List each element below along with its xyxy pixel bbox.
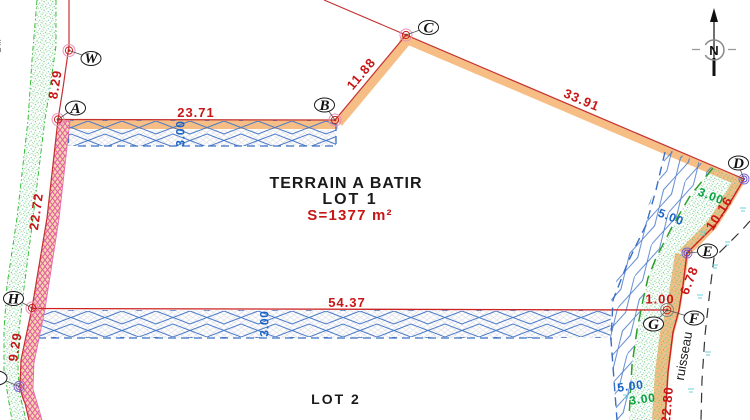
svg-text:3.00: 3.00: [258, 310, 272, 337]
svg-text:S=1377 m²: S=1377 m²: [307, 207, 392, 224]
svg-text:W: W: [84, 51, 99, 67]
svg-text:ruisseau: ruisseau: [672, 330, 695, 381]
svg-text:3.00: 3.00: [174, 120, 188, 147]
svg-text:D: D: [732, 156, 744, 172]
svg-text:C: C: [423, 21, 434, 37]
svg-text:TERRAIN A BATIR: TERRAIN A BATIR: [269, 175, 422, 192]
svg-text:22.80: 22.80: [658, 386, 676, 420]
svg-text:B: B: [318, 98, 329, 114]
svg-text:N: N: [709, 43, 718, 58]
svg-text:E M: E M: [0, 39, 3, 52]
svg-text:E: E: [701, 244, 712, 260]
svg-text:F: F: [688, 311, 699, 327]
svg-text:A: A: [69, 101, 80, 117]
svg-text:H: H: [7, 292, 21, 308]
svg-text:23.71: 23.71: [177, 105, 215, 120]
svg-text:54.37: 54.37: [328, 295, 366, 310]
svg-text:1.00: 1.00: [645, 292, 674, 307]
svg-text:LOT 1: LOT 1: [322, 191, 377, 208]
svg-text:G: G: [648, 317, 659, 333]
svg-text:LOT 2: LOT 2: [311, 391, 361, 407]
